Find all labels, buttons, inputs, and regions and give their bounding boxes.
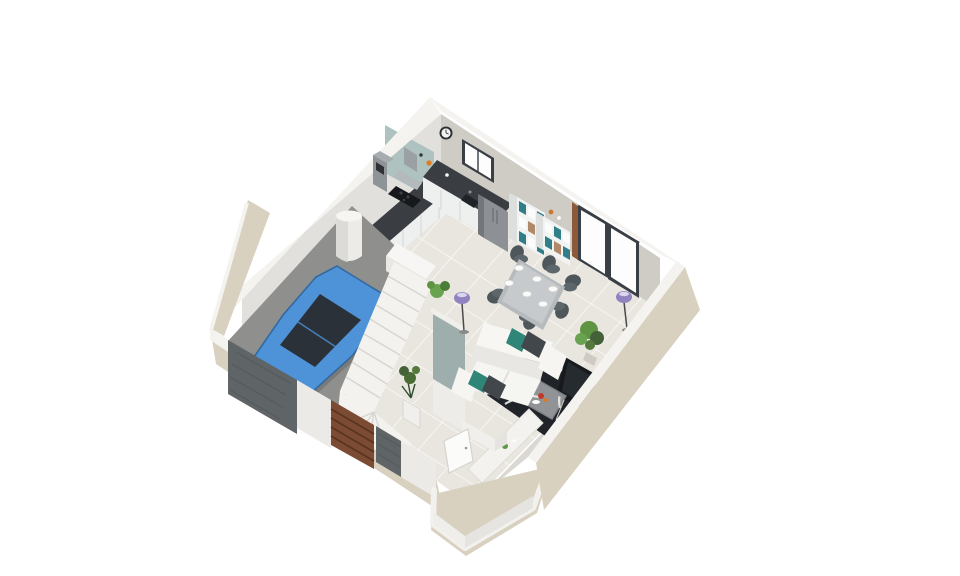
- faucet: [469, 191, 472, 194]
- table-decor-red: [538, 393, 544, 399]
- door-knob: [465, 447, 468, 450]
- water-heater: [336, 211, 362, 263]
- door-wood-edge: [572, 202, 578, 260]
- orange-kettle: [426, 160, 431, 165]
- wall-clock: [440, 127, 453, 140]
- table-decor-dish: [532, 400, 540, 404]
- floor-plan-svg: [0, 0, 960, 576]
- bench-vase: [512, 439, 517, 443]
- white-vase: [557, 216, 561, 220]
- cup: [445, 173, 449, 177]
- amber-vase: [549, 210, 554, 215]
- table-decor-orange: [544, 398, 548, 402]
- floor-plan-render: [0, 0, 960, 576]
- bottle: [419, 153, 422, 156]
